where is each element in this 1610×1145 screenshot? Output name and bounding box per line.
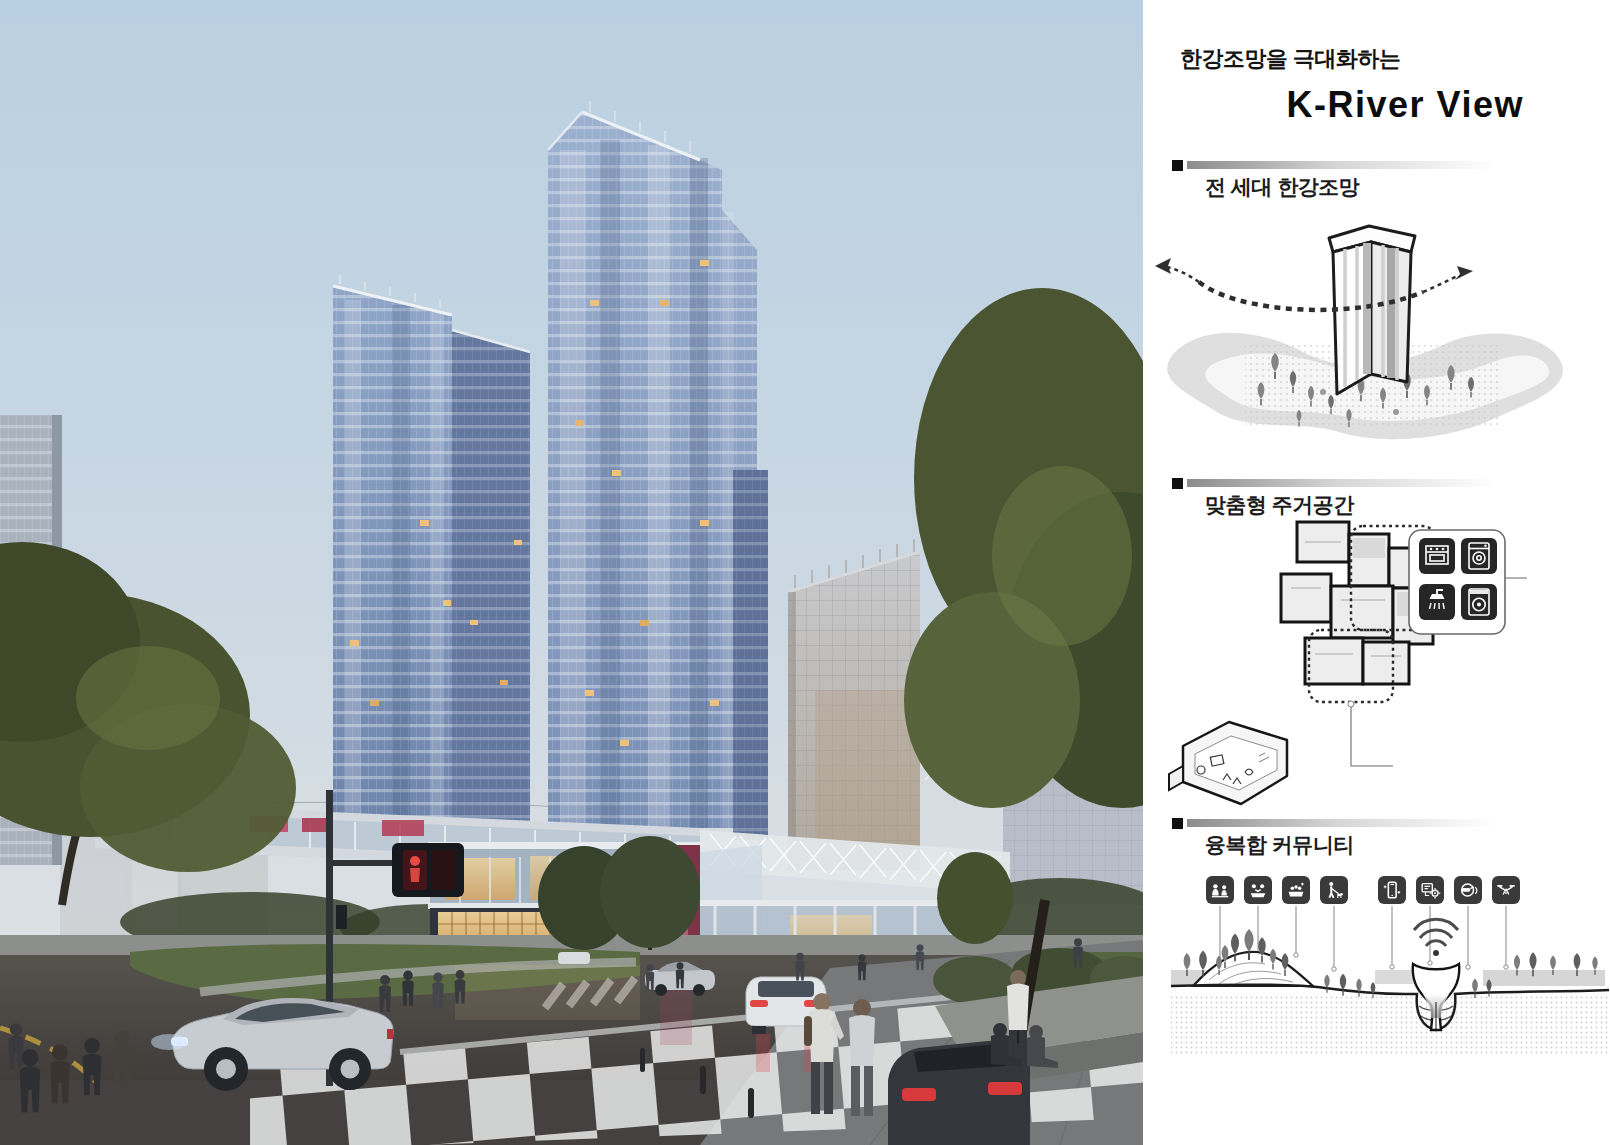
smartphone-icon <box>1378 876 1406 904</box>
bullet-square <box>1172 818 1183 829</box>
pet-walking-icon <box>1320 876 1348 904</box>
view-arc-arrow <box>1155 258 1473 310</box>
washing-machine-icon <box>1461 538 1497 574</box>
section-header: 융복합 커뮤니티 <box>1143 818 1610 864</box>
gradient-rule <box>1187 479 1522 487</box>
section-river-view: 전 세대 한강조망 <box>1143 160 1610 478</box>
halftone-ground <box>1171 996 1609 1054</box>
shoulder-bag <box>804 1016 812 1046</box>
taillight <box>902 1088 936 1101</box>
room-axon-cutaway <box>1169 722 1287 804</box>
red-pedestrian-light <box>410 856 420 866</box>
residential-tower-mid <box>452 330 530 845</box>
info-panel: 한강조망을 극대화하는 K-River View 전 세대 한강조망 <box>1143 0 1610 1145</box>
tower-axon <box>1329 226 1415 394</box>
section-mixed-community: 융복합 커뮤니티 <box>1143 818 1610 1078</box>
section-heading: 융복합 커뮤니티 <box>1205 831 1354 859</box>
right-platform <box>1483 970 1605 986</box>
family-care-icon <box>1206 876 1234 904</box>
architectural-rendering <box>0 0 1143 1145</box>
light-reflection <box>455 965 640 1020</box>
community-landscape-diagram <box>1165 906 1610 1071</box>
tower-view-diagram <box>1153 194 1593 466</box>
bullet-square <box>1172 478 1183 489</box>
floor-plan-diagram <box>1157 516 1597 816</box>
vr-headset-icon <box>1454 876 1482 904</box>
smart-control-icon <box>1416 876 1444 904</box>
dryer-icon <box>1461 584 1497 620</box>
led-screen <box>382 820 424 836</box>
distant-car <box>558 952 590 964</box>
kitchen-range-icon <box>1419 538 1455 574</box>
gradient-rule <box>1187 161 1522 169</box>
community-icon-row <box>1206 876 1520 904</box>
group-meeting-icon <box>1244 876 1272 904</box>
gradient-rule <box>1187 819 1522 827</box>
presentation-board: 한강조망을 극대화하는 K-River View 전 세대 한강조망 <box>0 0 1610 1145</box>
bullet-square <box>1172 160 1183 171</box>
taillight <box>988 1082 1022 1095</box>
section-heading: 맞춤형 주거공간 <box>1205 491 1354 519</box>
residential-tower-left <box>333 275 452 838</box>
slim-tower <box>733 470 768 840</box>
panel-subtitle: 한강조망을 극대화하는 <box>1180 44 1401 74</box>
led-screen <box>302 818 328 832</box>
drone-icon <box>1492 876 1520 904</box>
connector-line <box>1351 704 1393 766</box>
water-leisure-icon <box>1282 876 1310 904</box>
wifi-icon <box>1414 919 1458 956</box>
shower-icon <box>1419 584 1455 620</box>
taillight <box>750 1000 768 1007</box>
section-custom-residential: 맞춤형 주거공간 <box>1143 478 1610 818</box>
smart-appliance-panel <box>1409 530 1505 634</box>
panel-title: K-River View <box>1287 84 1524 126</box>
office-tower <box>788 539 920 870</box>
